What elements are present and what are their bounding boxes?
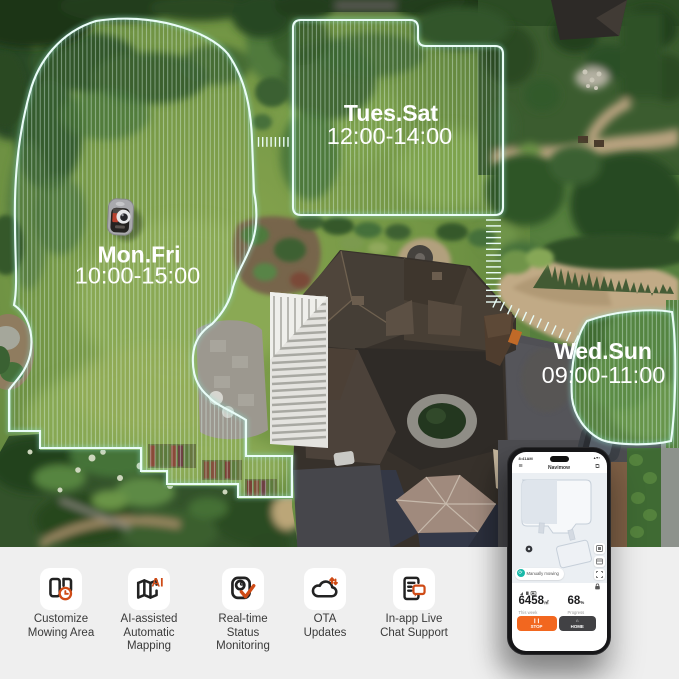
svg-text:Wed.Sun: Wed.Sun [554,338,652,364]
svg-text:12:00-14:00: 12:00-14:00 [327,123,452,149]
svg-text:09:00-11:00: 09:00-11:00 [542,362,666,388]
svg-text:10:00-15:00: 10:00-15:00 [75,263,200,289]
svg-text:AI: AI [151,575,163,589]
